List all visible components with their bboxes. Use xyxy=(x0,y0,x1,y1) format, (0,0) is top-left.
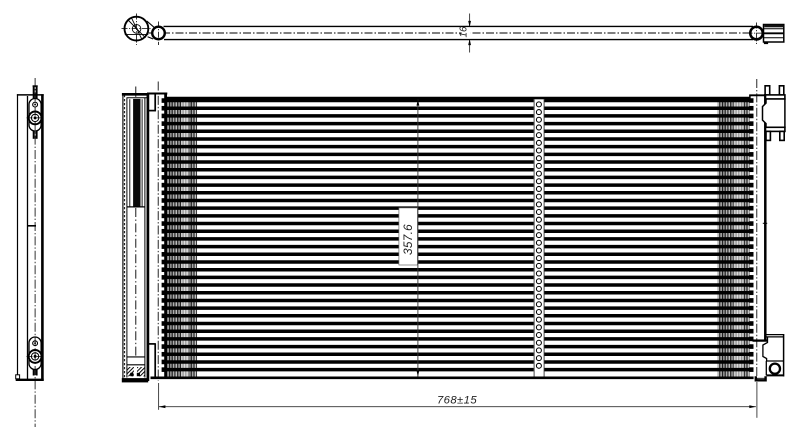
svg-text:16: 16 xyxy=(459,26,470,37)
svg-text:357.6: 357.6 xyxy=(401,224,415,255)
svg-text:768±15: 768±15 xyxy=(437,395,477,407)
